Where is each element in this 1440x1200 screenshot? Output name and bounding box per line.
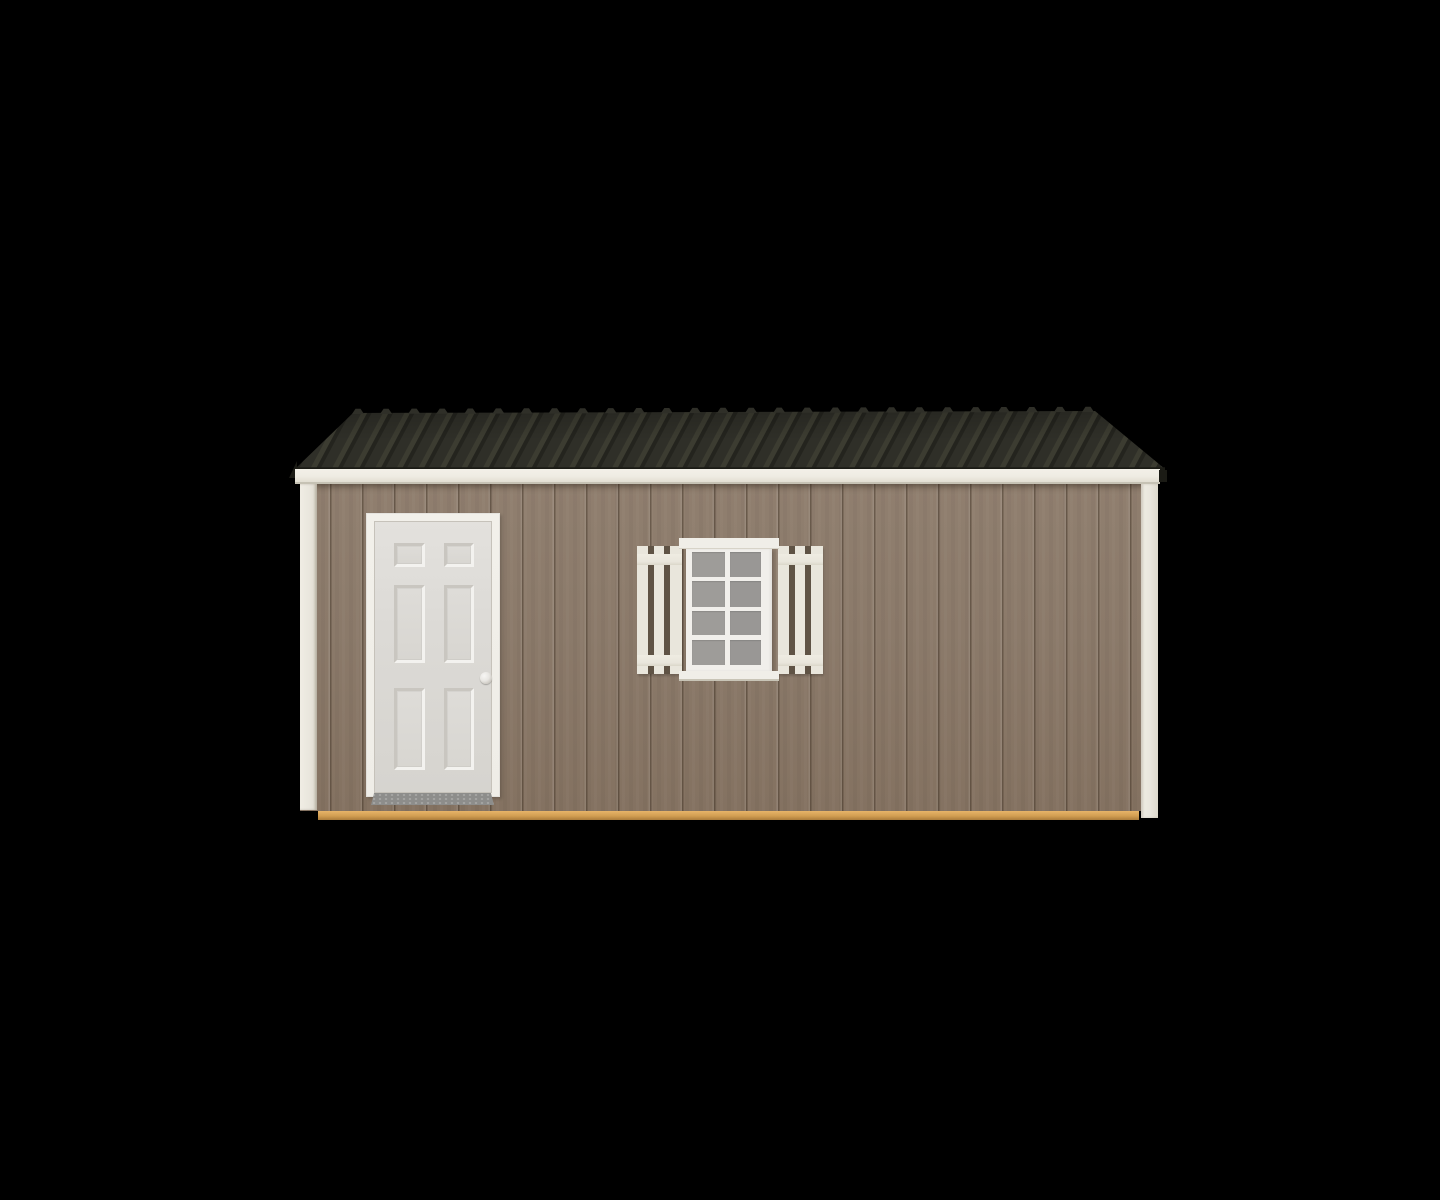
- shutter-rail: [778, 655, 823, 666]
- window-glass-grid: [692, 552, 761, 665]
- door-panel: [394, 543, 425, 567]
- window-pane: [692, 640, 725, 665]
- shutter-rail: [778, 554, 823, 565]
- door-frame: [366, 513, 500, 797]
- window-header-trim: [679, 538, 779, 549]
- roof-corner-return-right: [1159, 470, 1167, 482]
- shutter-right: [778, 546, 823, 674]
- window-pane: [730, 640, 761, 665]
- window-pane: [730, 611, 761, 635]
- shed-render-canvas: [0, 0, 1440, 1200]
- shutter-left: [637, 546, 682, 674]
- door-panel: [394, 585, 425, 663]
- door-panel: [394, 688, 425, 770]
- window-pane: [692, 552, 725, 577]
- door-panel: [444, 543, 474, 567]
- window-pane: [730, 581, 761, 607]
- corner-trim-right: [1141, 484, 1158, 818]
- window-pane: [730, 552, 761, 577]
- shutter-rail: [637, 655, 682, 666]
- door-panel: [444, 585, 474, 663]
- entry-door: [374, 521, 492, 793]
- window-pane: [692, 581, 725, 607]
- skid-runner: [318, 811, 1139, 820]
- roof-shading: [295, 411, 1165, 469]
- door-panel: [444, 688, 474, 770]
- door-knob: [480, 672, 492, 684]
- roof-slope: [295, 411, 1165, 469]
- corner-trim-left: [300, 484, 317, 810]
- window-pane: [692, 611, 725, 635]
- window-sill-trim: [679, 671, 779, 681]
- shutter-rail: [637, 554, 682, 565]
- door-threshold: [371, 793, 494, 805]
- roof-ridge-rib-caps: [352, 407, 1094, 414]
- fascia-trim: [295, 469, 1160, 484]
- window: [686, 549, 772, 671]
